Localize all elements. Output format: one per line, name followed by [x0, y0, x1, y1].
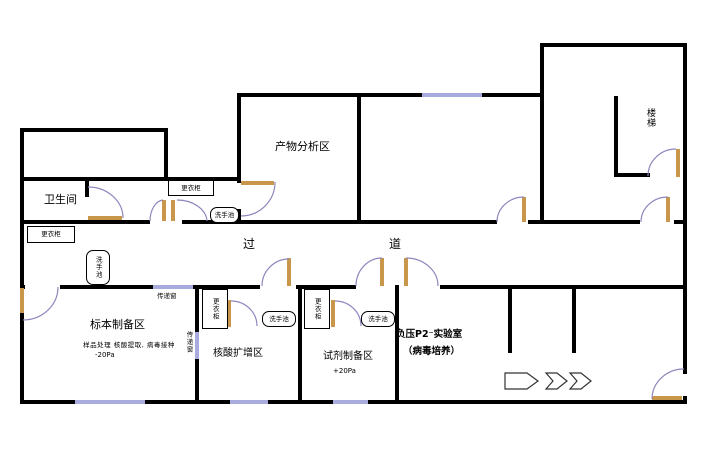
- door-arc-stair-lobby: [641, 197, 668, 222]
- wardrobe-box-amplification: 更衣柜: [202, 289, 228, 329]
- wall-corridor-top-4: [674, 220, 687, 224]
- sink-box-amplification: 洗手池: [262, 311, 296, 327]
- door-arc-toilet: [88, 187, 123, 218]
- wall-p2lab-stub-2: [572, 289, 576, 353]
- door-arc-double-left: [356, 258, 382, 286]
- wall-p2lab-stub-1: [508, 289, 512, 353]
- floor-plan: 更衣柜 更衣柜 更衣柜 更衣柜 洗手池 洗手池 洗手池 洗手池 卫生间 产物分析…: [0, 0, 707, 450]
- wall-stair-inner-v: [614, 96, 618, 177]
- window-roomb-top: [422, 93, 482, 97]
- room-label-reagent-prep: 试剂制备区: [323, 347, 373, 362]
- wall-right-outer: [683, 43, 687, 374]
- wall-divider-amplification-reagent: [298, 285, 302, 404]
- wardrobe-box-reagent: 更衣柜: [304, 289, 330, 329]
- door-leaf-vestibule-left: [162, 200, 166, 221]
- wall-analysis-right: [357, 93, 361, 224]
- pass-window-label-top: 传递窗: [157, 290, 177, 300]
- wall-strip-right: [164, 128, 168, 181]
- door-arcs-layer: [0, 0, 707, 450]
- door-leaf-roomb: [522, 197, 526, 222]
- sink-label: 洗手池: [368, 316, 388, 323]
- wardrobe-box-toilet: 更衣柜: [27, 226, 75, 243]
- wall-divider-reagent-p2lab: [395, 285, 399, 404]
- wall-analysis-left-upper: [237, 93, 241, 183]
- p2-lab-sublabel: （病毒培养）: [403, 343, 460, 357]
- wardrobe-label: 更衣柜: [181, 185, 201, 192]
- sink-box-specimen: 洗手池: [86, 250, 110, 285]
- wall-stair-inner-h: [614, 173, 650, 177]
- door-leaf-double-right: [404, 258, 408, 286]
- door-arc-amplification-inner: [231, 301, 257, 326]
- room-label-amplification: 核酸扩增区: [213, 344, 263, 359]
- specimen-prep-sublabel: 样品处理 核酸提取, 病毒接种: [58, 339, 200, 349]
- pass-window-specimen-top: [153, 285, 193, 289]
- door-leaf-bottom-right: [652, 396, 682, 400]
- door-arc-stair-inner: [648, 149, 676, 176]
- wall-toilet-stub: [85, 177, 89, 197]
- door-leaf-reagent-inner: [331, 300, 335, 327]
- flow-arrow-icon: [570, 373, 591, 389]
- sink-label: 洗手池: [269, 316, 289, 323]
- door-arc-analysis: [241, 182, 275, 216]
- room-label-toilet: 卫生间: [44, 191, 77, 207]
- door-arc-bottom-right: [652, 369, 684, 399]
- wall-left-upper: [20, 128, 24, 288]
- wall-left-lower: [20, 313, 24, 404]
- sink-label: 洗手池: [215, 212, 235, 219]
- wall-stair-left: [540, 43, 544, 224]
- wardrobe-box-vestibule: 更衣柜: [168, 180, 214, 196]
- room-label-product-analysis: 产物分析区: [275, 138, 330, 154]
- window-bottom-1: [75, 400, 145, 404]
- door-arc-vestibule-right: [177, 200, 207, 221]
- reagent-prep-pressure: +20Pa: [333, 367, 356, 375]
- door-leaf-specimen-west: [20, 288, 24, 313]
- wall-corridor-bottom-3: [440, 285, 687, 289]
- wardrobe-label: 更衣柜: [314, 298, 321, 321]
- room-label-specimen-prep: 标本制备区: [90, 316, 145, 332]
- door-leaf-double-left: [380, 258, 384, 286]
- pass-window-label-side: 传递窗: [184, 331, 194, 354]
- wall-corridor-top-3: [528, 220, 640, 224]
- sink-label: 洗手池: [95, 256, 102, 279]
- door-arc-reagent-inner: [335, 301, 361, 326]
- flow-arrow-icon: [546, 373, 567, 389]
- corridor-label-left: 过: [243, 235, 255, 252]
- door-leaf-amplification-corridor: [287, 258, 291, 286]
- wall-roomb-top-right: [482, 93, 542, 97]
- room-label-p2-lab: 负压P2⁻实验室: [396, 326, 462, 340]
- wall-right-corner: [683, 396, 687, 404]
- door-leaf-stair-lobby: [666, 197, 670, 222]
- door-arc-specimen-west: [23, 287, 58, 320]
- sink-box-reagent: 洗手池: [361, 311, 395, 327]
- door-leaf-analysis: [241, 181, 274, 185]
- wardrobe-label: 更衣柜: [41, 231, 61, 238]
- door-leaf-vestibule-right: [171, 200, 175, 221]
- sink-box-vestibule: 洗手池: [210, 207, 239, 223]
- door-arc-roomb: [497, 197, 524, 222]
- wall-corridor-top-1: [20, 220, 150, 224]
- wardrobe-label: 更衣柜: [212, 298, 219, 321]
- wall-analysis-top: [237, 93, 422, 97]
- door-arc-amplification-corridor: [262, 259, 289, 286]
- window-bottom-3: [333, 400, 368, 404]
- corridor-label-right: 道: [389, 235, 401, 252]
- wall-stair-top: [540, 43, 687, 47]
- specimen-prep-pressure: -20Pa: [95, 351, 115, 359]
- flow-arrow-icon: [505, 373, 538, 389]
- wall-strip-top: [20, 128, 168, 132]
- door-arc-double-right: [406, 258, 438, 286]
- room-label-stairs: 楼梯: [644, 108, 657, 128]
- door-leaf-stair-inner: [676, 149, 680, 177]
- window-bottom-2: [230, 400, 268, 404]
- door-leaf-toilet: [88, 216, 122, 220]
